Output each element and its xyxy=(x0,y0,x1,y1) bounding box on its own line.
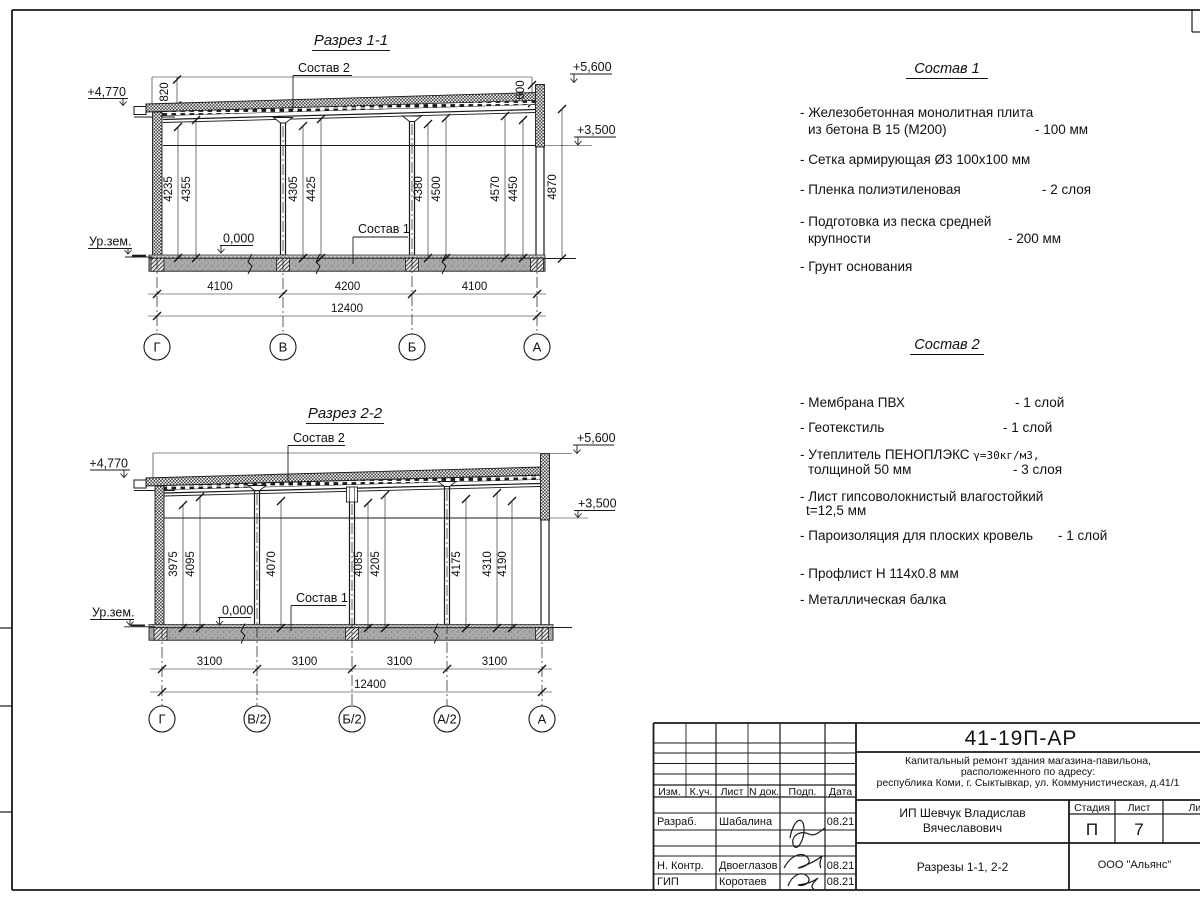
name-cell: Коротаев xyxy=(719,876,767,888)
dim-label: 3975 xyxy=(168,551,180,577)
material-line: из бетона В 15 (М200) xyxy=(808,122,947,137)
section-1-1 xyxy=(88,74,616,360)
material-density: γ=30кг/м3, xyxy=(973,449,1039,462)
span-dim: 3100 xyxy=(197,656,223,668)
zero-level: 0,000 xyxy=(223,232,254,246)
span-dim: 3100 xyxy=(387,656,413,668)
ground-level-label: Ур.зем. xyxy=(92,606,134,620)
sheet-label: Лист xyxy=(1115,802,1163,814)
stage-value: П xyxy=(1069,820,1115,840)
eave-edge-2 xyxy=(134,480,146,488)
description-line: республика Коми, г. Сыктывкар, ул. Комму… xyxy=(856,778,1200,789)
organization: ООО "Альянс" xyxy=(1069,859,1200,871)
material-line: - Профлист Н 114х0.8 мм xyxy=(800,566,959,581)
grid-label: Г xyxy=(153,340,160,355)
parapet-right-1 xyxy=(536,85,545,148)
dim-label: 4425 xyxy=(306,176,318,202)
date-cell: 08.21 xyxy=(825,860,856,872)
elevation-ceiling: +3,500 xyxy=(577,123,616,137)
floor-screed-1 xyxy=(149,255,545,258)
grid-label: В xyxy=(279,340,288,355)
parapet-right-2 xyxy=(541,454,550,521)
material-line: - Геотекстиль xyxy=(800,420,884,435)
dim-820: 820 xyxy=(159,82,171,101)
total-dim: 12400 xyxy=(331,303,363,315)
dim-label: 4570 xyxy=(490,176,502,202)
date-cell: 08.21 xyxy=(825,876,856,888)
beam-hanger xyxy=(347,487,358,502)
span-dim: 3100 xyxy=(482,656,508,668)
col-header-list: Лист xyxy=(716,786,748,798)
role-cell: Н. Контр. xyxy=(657,860,704,872)
sostav1-ref-label: Состав 1 xyxy=(358,222,410,236)
grid-label: А xyxy=(538,712,547,727)
name-cell: Шабалина xyxy=(719,816,772,828)
wall-left-2 xyxy=(155,486,164,628)
dim-label: 4070 xyxy=(266,551,278,577)
material-line: t=12,5 мм xyxy=(806,503,866,518)
section-title: Разрез 2-2 xyxy=(308,405,383,422)
drawing-sheet: Разрез 1-1 Состав 2 Состав 1 +4,770 +5,6… xyxy=(0,0,1200,900)
sostav2-title: Состав 2 xyxy=(910,337,984,355)
material-value: - 2 слоя xyxy=(1042,182,1091,197)
span-dim: 3100 xyxy=(292,656,318,668)
sostav2-ref-label: Состав 2 xyxy=(298,61,350,75)
material-line: - Лист гипсоволокнистый влагостойкий xyxy=(800,489,1043,504)
document-number: 41-19П-АР xyxy=(856,727,1186,751)
grid-label: Б xyxy=(408,340,417,355)
client-line: ИП Шевчук Владислав xyxy=(856,806,1069,821)
dim-label: 4380 xyxy=(413,176,425,202)
material-line: - Металлическая балка xyxy=(800,592,946,607)
date-cell: 08.21 xyxy=(825,816,856,828)
material-value: - 1 слой xyxy=(1003,420,1052,435)
project-description: Капитальный ремонт здания магазина-павил… xyxy=(856,756,1200,789)
floor-slab-1 xyxy=(149,258,545,271)
dim-label: 4235 xyxy=(163,176,175,202)
material-line: крупности xyxy=(808,231,871,246)
dim-label: 4190 xyxy=(497,551,509,577)
dim-label: 4085 xyxy=(353,551,365,577)
sheet-title: Разрезы 1-1, 2-2 xyxy=(856,860,1069,874)
grid-label: А/2 xyxy=(437,712,457,727)
material-value: - 200 мм xyxy=(1008,231,1061,246)
wall-left-1 xyxy=(153,112,163,258)
zero-level: 0,000 xyxy=(222,604,253,618)
signature xyxy=(788,874,818,889)
material-line: - Мембрана ПВХ xyxy=(800,395,905,410)
section-2-2 xyxy=(90,445,615,732)
material-line: - Пленка полиэтиленовая xyxy=(800,182,961,197)
dim-label: 4500 xyxy=(431,176,443,202)
col-header-podp: Подп. xyxy=(780,786,825,798)
material-value: - 3 слоя xyxy=(1013,462,1062,477)
material-value: - 100 мм xyxy=(1035,122,1088,137)
col-header-ndoc: N док. xyxy=(748,786,780,798)
client-name: ИП Шевчук Владислав Вячеславович xyxy=(856,806,1069,836)
sostav1-ref-label: Состав 1 xyxy=(296,591,348,605)
dim-label: 4310 xyxy=(482,551,494,577)
sheet-number: 7 xyxy=(1115,820,1163,840)
col-header-kuch: К.уч. xyxy=(686,786,716,798)
dim-label: 4175 xyxy=(451,551,463,577)
grid-label: А xyxy=(533,340,542,355)
material-line: - Утеплитель ПЕНОПЛЭКС γ=30кг/м3, xyxy=(800,447,1040,462)
elevation-ceiling: +3,500 xyxy=(578,497,617,511)
dim-600: 600 xyxy=(515,80,527,99)
signature xyxy=(790,820,825,847)
floor-screed-2 xyxy=(149,625,553,628)
col-header-data: Дата xyxy=(825,786,856,798)
material-line: - Сетка армирующая Ø3 100х100 мм xyxy=(800,152,1030,167)
dim-label: 4305 xyxy=(288,176,300,202)
span-dim: 4100 xyxy=(207,281,233,293)
elevation-parapet: +5,600 xyxy=(573,60,612,74)
dim-label: 4870 xyxy=(547,174,559,200)
material-value: - 1 слой xyxy=(1015,395,1064,410)
elevation-eave: +4,770 xyxy=(89,457,128,471)
material-line: - Грунт основания xyxy=(800,259,912,274)
stage-label: Стадия xyxy=(1069,802,1115,814)
grid-label: Г xyxy=(158,712,165,727)
total-dim: 12400 xyxy=(354,679,386,691)
material-name: - Утеплитель ПЕНОПЛЭКС xyxy=(800,447,970,462)
material-line: толщиной 50 мм xyxy=(808,462,911,477)
section-title: Разрез 1-1 xyxy=(314,32,388,49)
client-line: Вячеславович xyxy=(856,821,1069,836)
material-value: - 1 слой xyxy=(1058,528,1107,543)
span-dim: 4200 xyxy=(335,281,361,293)
elevation-parapet: +5,600 xyxy=(577,431,616,445)
eave-edge-1 xyxy=(134,107,146,115)
material-line: - Пароизоляция для плоских кровель xyxy=(800,528,1033,543)
role-cell: Разраб. xyxy=(657,816,697,828)
name-cell: Двоеглазов xyxy=(719,860,777,872)
grid-label: В/2 xyxy=(247,712,267,727)
span-dim: 4100 xyxy=(462,281,488,293)
material-line: - Железобетонная монолитная плита xyxy=(800,105,1033,120)
col-header-izm: Изм. xyxy=(653,786,686,798)
dim-label: 4205 xyxy=(370,551,382,577)
ground-level-label: Ур.зем. xyxy=(89,235,131,249)
material-line: - Подготовка из песка средней xyxy=(800,214,991,229)
role-cell: ГИП xyxy=(657,876,679,888)
sostav2-ref-label: Состав 2 xyxy=(293,431,345,445)
dim-label: 4355 xyxy=(181,176,193,202)
dim-label: 4450 xyxy=(508,176,520,202)
sheets-total-label: Листов xyxy=(1163,802,1200,814)
dim-label: 4095 xyxy=(185,551,197,577)
signature xyxy=(784,855,822,868)
grid-label: Б/2 xyxy=(342,712,361,727)
sostav1-title: Состав 1 xyxy=(906,61,988,79)
elevation-eave: +4,770 xyxy=(87,85,126,99)
